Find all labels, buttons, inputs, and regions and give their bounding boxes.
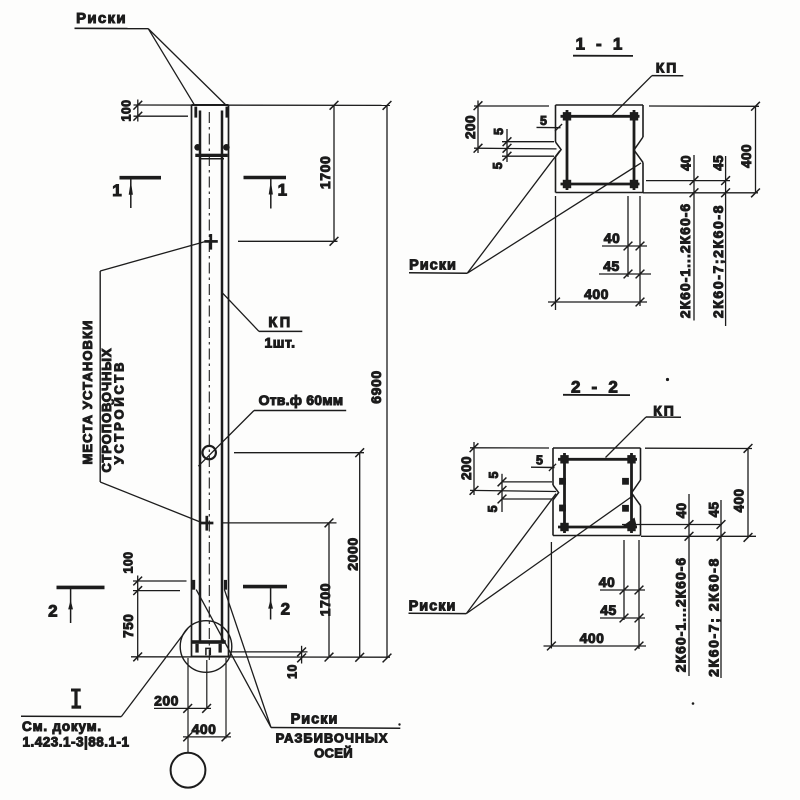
svg-text:2 - 2: 2 - 2: [571, 378, 621, 397]
svg-text:40: 40: [678, 155, 693, 171]
svg-text:5: 5: [492, 128, 506, 135]
svg-text:5: 5: [536, 454, 543, 468]
svg-text:КП: КП: [653, 403, 676, 419]
svg-text:1700: 1700: [317, 583, 333, 617]
svg-text:1 - 1: 1 - 1: [575, 35, 625, 54]
svg-text:45: 45: [707, 502, 722, 518]
svg-text:2К60-1...2К60-6: 2К60-1...2К60-6: [673, 557, 689, 672]
svg-text:2: 2: [281, 600, 290, 619]
svg-text:2К60-7; 2К60-8: 2К60-7; 2К60-8: [706, 557, 722, 677]
svg-text:5: 5: [486, 505, 500, 512]
svg-text:40: 40: [599, 574, 616, 590]
svg-text:45: 45: [711, 155, 726, 171]
svg-text:400: 400: [732, 488, 747, 512]
svg-text:5: 5: [487, 471, 501, 478]
svg-text:200: 200: [459, 456, 474, 480]
svg-text:6900: 6900: [368, 370, 384, 404]
svg-text:КП: КП: [268, 315, 292, 331]
svg-text:10: 10: [286, 664, 300, 679]
svg-text:1шт.: 1шт.: [265, 335, 296, 351]
svg-text:45: 45: [603, 258, 620, 274]
svg-text:400: 400: [584, 286, 609, 302]
svg-text:400: 400: [739, 144, 754, 168]
svg-text:ОСЕЙ: ОСЕЙ: [314, 745, 353, 760]
svg-text:40: 40: [674, 503, 689, 519]
svg-text:100: 100: [121, 551, 135, 573]
svg-text:2К60-1...2К60-6: 2К60-1...2К60-6: [677, 203, 693, 318]
svg-text:2: 2: [48, 602, 57, 621]
svg-text:2000: 2000: [344, 537, 360, 571]
svg-text:1: 1: [278, 181, 287, 200]
svg-text:См. докум.: См. докум.: [22, 719, 102, 734]
svg-text:КП: КП: [656, 60, 679, 76]
svg-text:1.423.1-3|88.1-1: 1.423.1-3|88.1-1: [22, 735, 129, 750]
svg-text:200: 200: [154, 693, 179, 709]
svg-text:45: 45: [600, 602, 617, 618]
svg-text:Риски: Риски: [291, 712, 339, 728]
svg-text:200: 200: [463, 115, 478, 139]
svg-text:РАЗБИВОЧНЫХ: РАЗБИВОЧНЫХ: [276, 731, 389, 746]
svg-text:1: 1: [112, 181, 121, 200]
svg-text:УСТРОЙСТВ: УСТРОЙСТВ: [112, 360, 127, 465]
svg-text:МЕСТА УСТАНОВКИ: МЕСТА УСТАНОВКИ: [80, 319, 95, 464]
svg-text:5: 5: [491, 162, 505, 169]
svg-text:2К60-7;2К60-8: 2К60-7;2К60-8: [710, 204, 726, 318]
svg-text:Риски: Риски: [409, 258, 457, 274]
svg-text:Риски: Риски: [409, 599, 457, 615]
svg-text:1700: 1700: [317, 156, 333, 190]
svg-text:5: 5: [540, 114, 547, 128]
svg-text:400: 400: [192, 721, 217, 737]
svg-text:400: 400: [580, 630, 605, 646]
svg-text:Риски: Риски: [76, 10, 127, 27]
svg-text:Отв.ф 60мм: Отв.ф 60мм: [259, 392, 344, 408]
svg-text:100: 100: [119, 99, 133, 121]
svg-text:40: 40: [604, 230, 621, 246]
svg-text:750: 750: [121, 614, 136, 638]
